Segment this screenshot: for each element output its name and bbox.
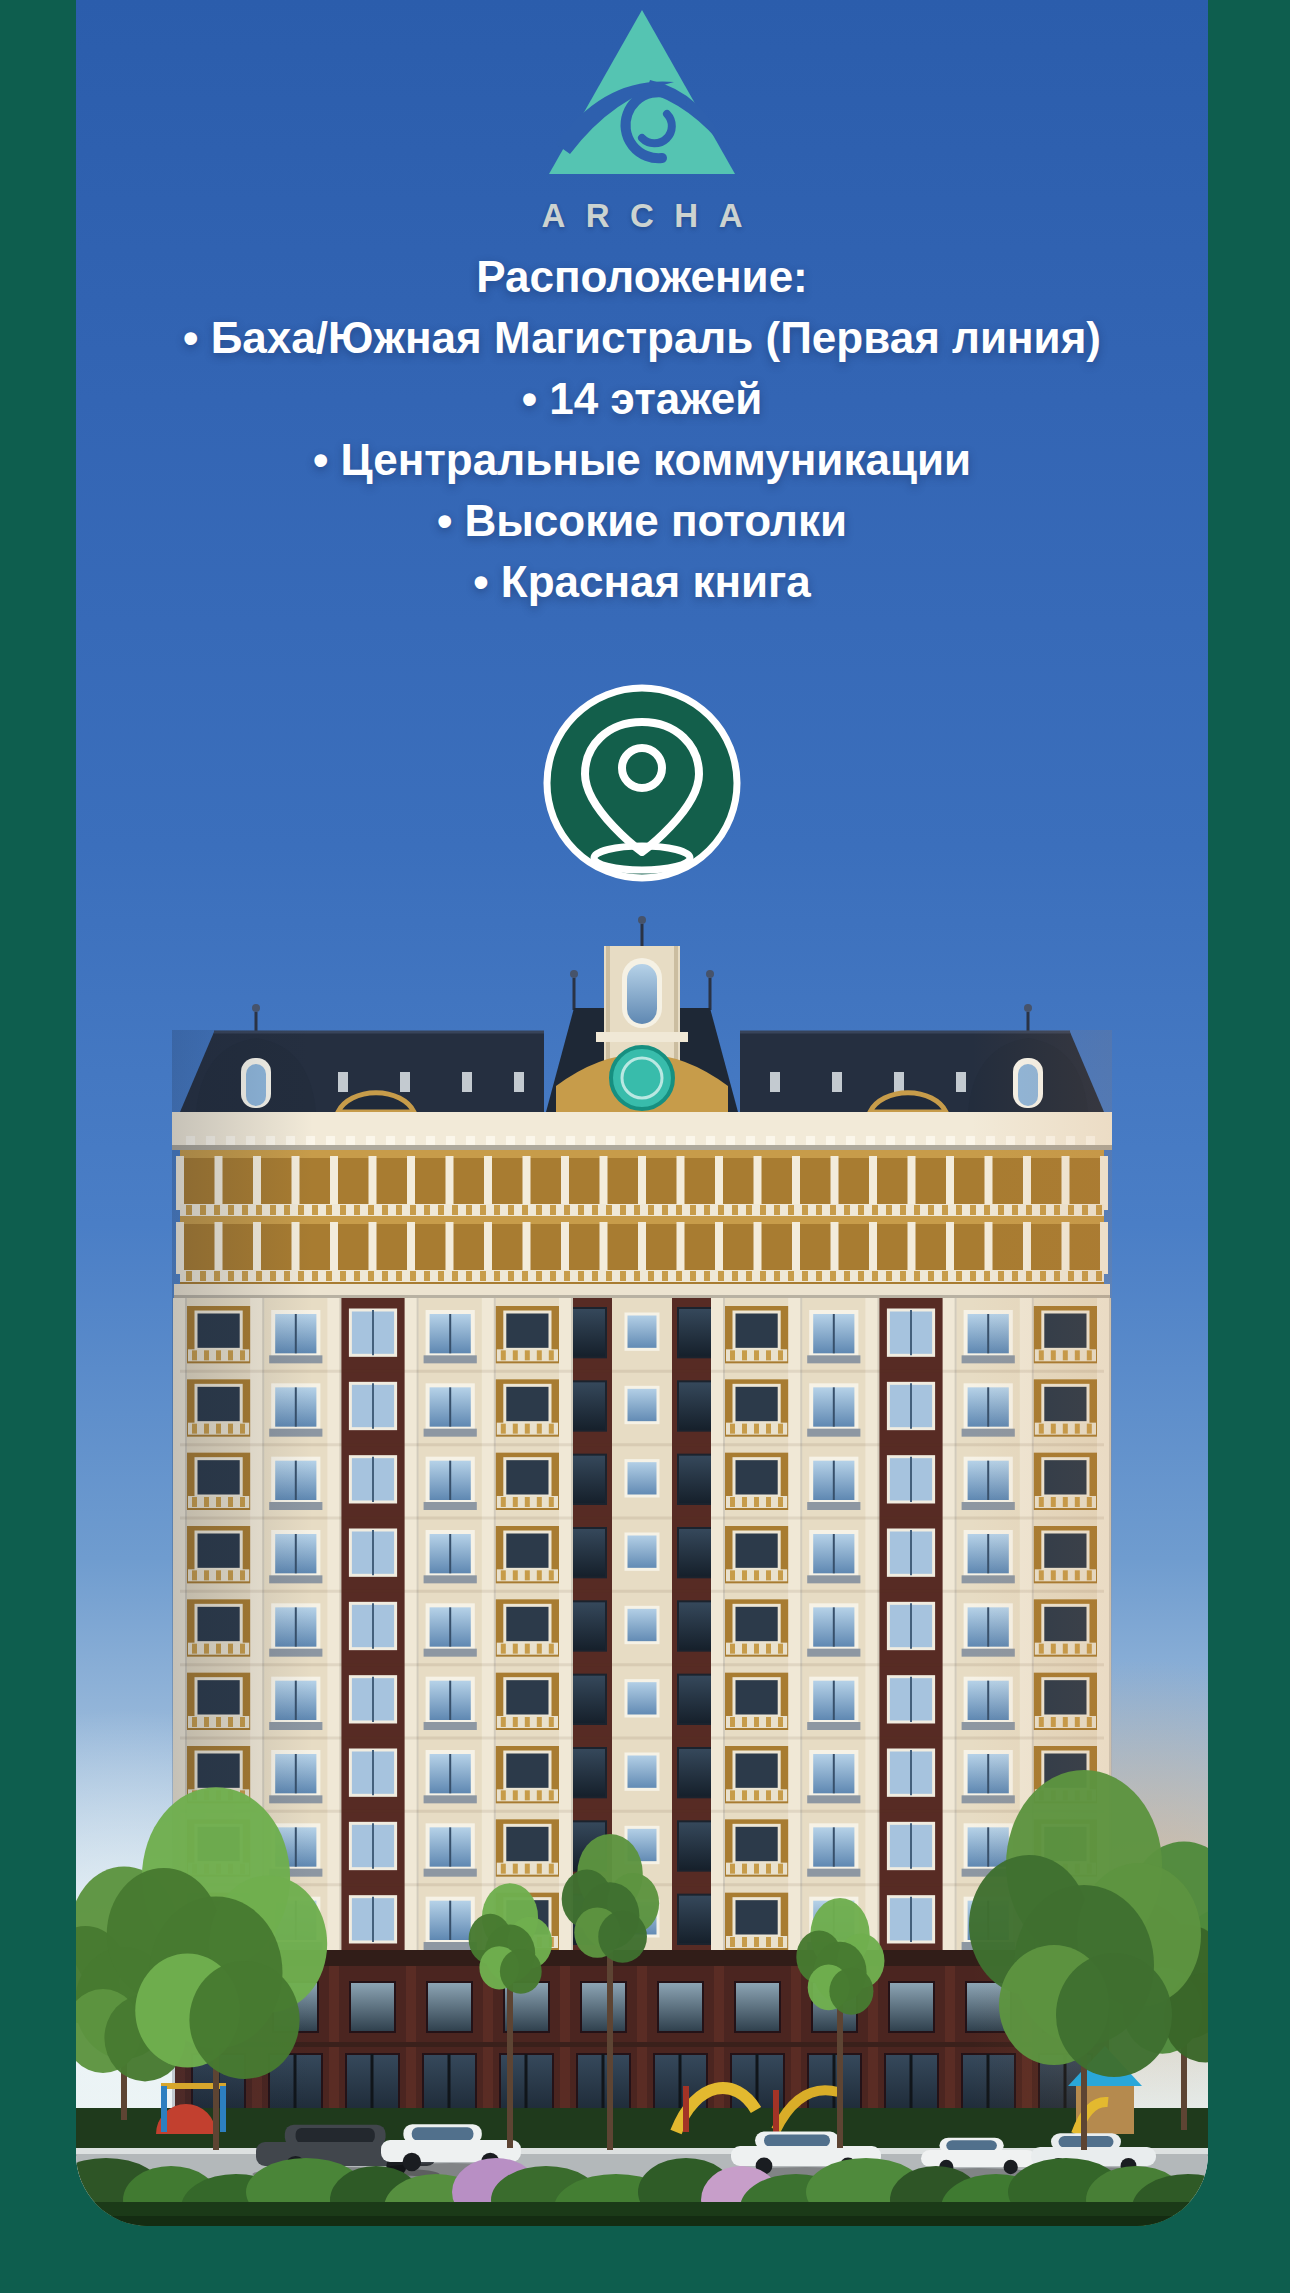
features-heading: Расположение: (76, 246, 1208, 307)
archa-logo-icon (492, 0, 792, 185)
poster-canvas: ARCHA Расположение: • Баха/Южная Магистр… (0, 0, 1290, 2293)
feature-item: • Центральные коммуникации (76, 429, 1208, 490)
features-list: Расположение: • Баха/Южная Магистраль (П… (76, 246, 1208, 612)
feature-item: • Баха/Южная Магистраль (Первая линия) (76, 307, 1208, 368)
feature-item: • Высокие потолки (76, 490, 1208, 551)
brand-logo: ARCHA (76, 0, 1208, 235)
feature-item: • 14 этажей (76, 368, 1208, 429)
location-pin-icon (541, 682, 743, 884)
poster-image: ARCHA Расположение: • Баха/Южная Магистр… (76, 0, 1208, 2226)
brand-name: ARCHA (76, 197, 1208, 235)
feature-item: • Красная книга (76, 551, 1208, 612)
